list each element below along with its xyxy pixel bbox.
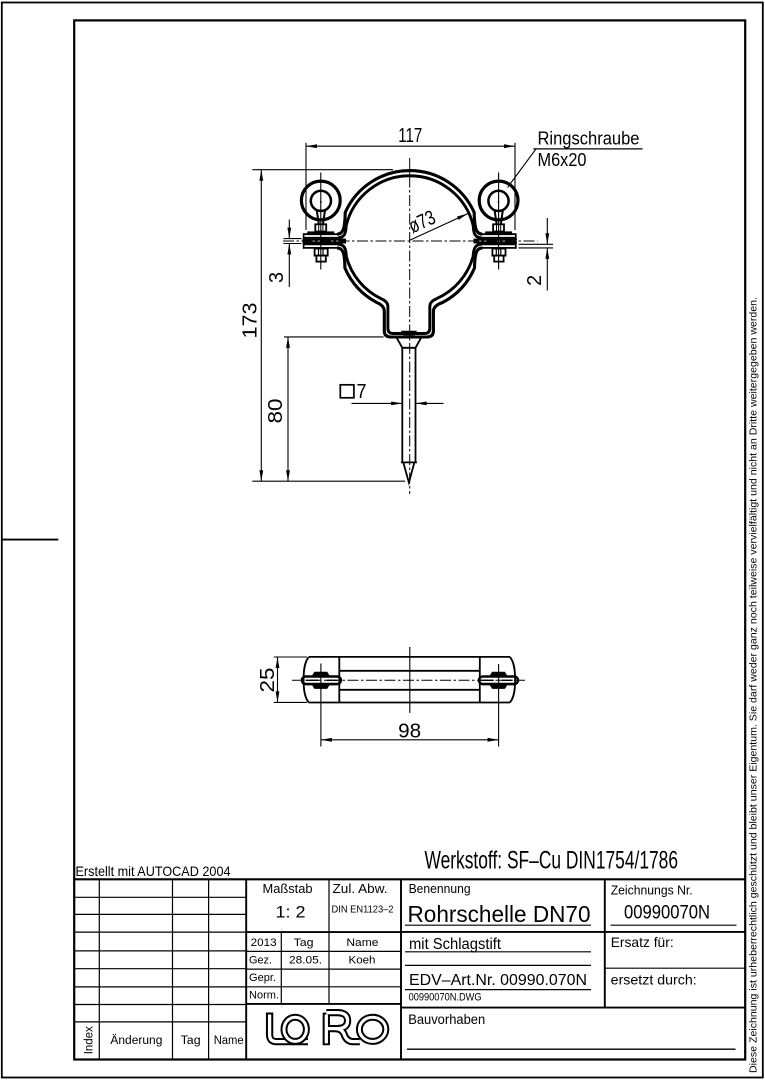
svg-text:DIN EN1123–2: DIN EN1123–2: [332, 904, 394, 916]
svg-text:28.05.: 28.05.: [289, 955, 322, 967]
svg-text:mit Schlagstift: mit Schlagstift: [409, 936, 502, 953]
svg-text:Diese Zeichnung ist urheberrec: Diese Zeichnung ist urheberrechtlich ges…: [749, 297, 760, 1073]
svg-text:2013: 2013: [251, 937, 277, 949]
svg-text:Maßstab: Maßstab: [263, 881, 313, 896]
svg-text:00990070N.DWG: 00990070N.DWG: [409, 992, 482, 1004]
svg-text:Gez.: Gez.: [249, 955, 272, 967]
svg-text:Koeh: Koeh: [349, 955, 376, 967]
svg-text:ersetzt durch:: ersetzt durch:: [611, 972, 697, 988]
svg-text:Benennung: Benennung: [409, 882, 471, 896]
svg-text:Ringschraube: Ringschraube: [538, 129, 640, 149]
svg-text:3: 3: [265, 272, 288, 283]
svg-text:Rohrschelle DN70: Rohrschelle DN70: [408, 901, 591, 927]
svg-text:00990070N: 00990070N: [624, 903, 710, 924]
svg-text:173: 173: [239, 303, 262, 339]
svg-text:Name: Name: [214, 1035, 244, 1047]
svg-text:Erstellt mit AUTOCAD 2004: Erstellt mit AUTOCAD 2004: [76, 863, 231, 879]
svg-text:7: 7: [357, 380, 367, 403]
svg-text:80: 80: [264, 399, 287, 424]
svg-text:Ersatz für:: Ersatz für:: [611, 934, 674, 950]
svg-text:Index: Index: [84, 1026, 96, 1054]
svg-text:Tag: Tag: [294, 937, 314, 949]
svg-text:EDV–Art.Nr. 00990.070N: EDV–Art.Nr. 00990.070N: [409, 972, 587, 989]
svg-text:Zul. Abw.: Zul. Abw.: [333, 881, 388, 896]
svg-text:Werkstoff: SF–Cu DIN1754/178: Werkstoff: SF–Cu DIN1754/1786: [425, 846, 679, 874]
svg-text:Tag: Tag: [181, 1035, 201, 1047]
svg-text:Gepr.: Gepr.: [249, 972, 276, 984]
svg-text:M6x20: M6x20: [538, 150, 587, 170]
svg-text:2: 2: [523, 275, 546, 286]
svg-text:117: 117: [398, 124, 422, 147]
svg-text:Name: Name: [346, 937, 378, 949]
svg-text:98: 98: [398, 720, 421, 743]
svg-text:Bauvorhaben: Bauvorhaben: [408, 1012, 485, 1027]
svg-text:1: 2: 1: 2: [276, 902, 306, 921]
svg-text:Zeichnungs Nr.: Zeichnungs Nr.: [611, 883, 693, 897]
svg-text:Änderung: Änderung: [110, 1035, 162, 1047]
svg-text:25: 25: [256, 668, 279, 693]
svg-text:Norm.: Norm.: [249, 990, 279, 1002]
